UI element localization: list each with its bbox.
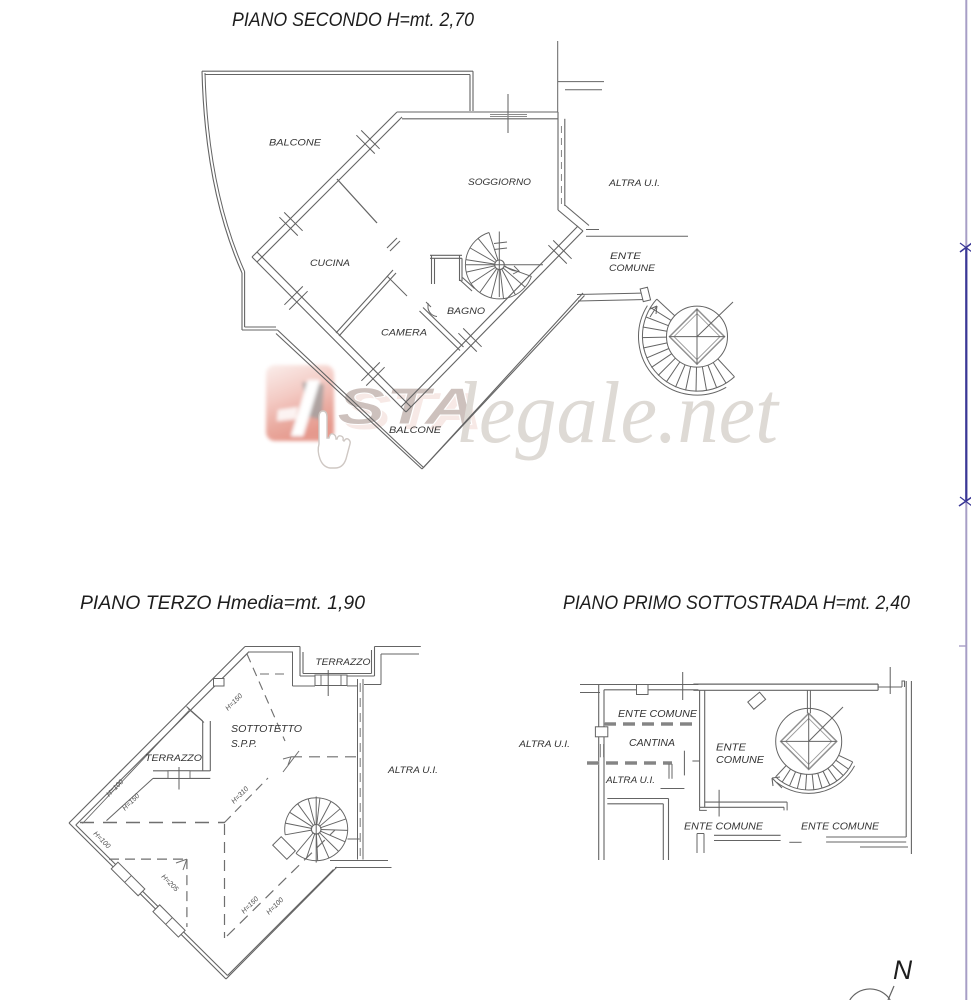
svg-text:BAGNO: BAGNO	[447, 306, 486, 317]
svg-text:CAMERA: CAMERA	[381, 328, 427, 339]
svg-text:SOTTOTETTO: SOTTOTETTO	[231, 723, 302, 735]
svg-text:PIANO PRIMO SOTTOSTRADA H=mt.: PIANO PRIMO SOTTOSTRADA H=mt. 2,40	[563, 593, 910, 614]
svg-text:ALTRA U.I.: ALTRA U.I.	[518, 739, 570, 749]
svg-text:ALTRA U.I.: ALTRA U.I.	[608, 178, 660, 189]
svg-text:SOGGIORNO: SOGGIORNO	[468, 177, 532, 188]
svg-text:ENTE: ENTE	[716, 742, 747, 754]
svg-text:PIANO SECONDO H=mt. 2,70: PIANO SECONDO H=mt. 2,70	[232, 10, 474, 31]
svg-text:TERRAZZO: TERRAZZO	[315, 657, 371, 668]
svg-text:ENTE COMUNE: ENTE COMUNE	[801, 822, 879, 833]
svg-text:BALCONE: BALCONE	[389, 425, 442, 436]
svg-text:ENTE COMUNE: ENTE COMUNE	[618, 709, 697, 720]
svg-text:BALCONE: BALCONE	[269, 138, 322, 149]
svg-text:ALTRA U.I.: ALTRA U.I.	[387, 765, 438, 776]
svg-text:COMUNE: COMUNE	[716, 754, 765, 766]
svg-text:TERRAZZO: TERRAZZO	[145, 753, 203, 764]
svg-text:N: N	[893, 955, 913, 985]
svg-text:S.P.P.: S.P.P.	[231, 738, 257, 750]
svg-text:ALTRA U.I.: ALTRA U.I.	[605, 775, 655, 786]
svg-text:CANTINA: CANTINA	[629, 738, 675, 749]
svg-text:PIANO TERZO Hmedia=mt. 1,90: PIANO TERZO Hmedia=mt. 1,90	[80, 593, 365, 614]
svg-text:CUCINA: CUCINA	[310, 258, 350, 269]
svg-text:ENTE: ENTE	[610, 251, 642, 262]
svg-text:ENTE COMUNE: ENTE COMUNE	[684, 822, 763, 833]
svg-text:COMUNE: COMUNE	[609, 263, 656, 274]
